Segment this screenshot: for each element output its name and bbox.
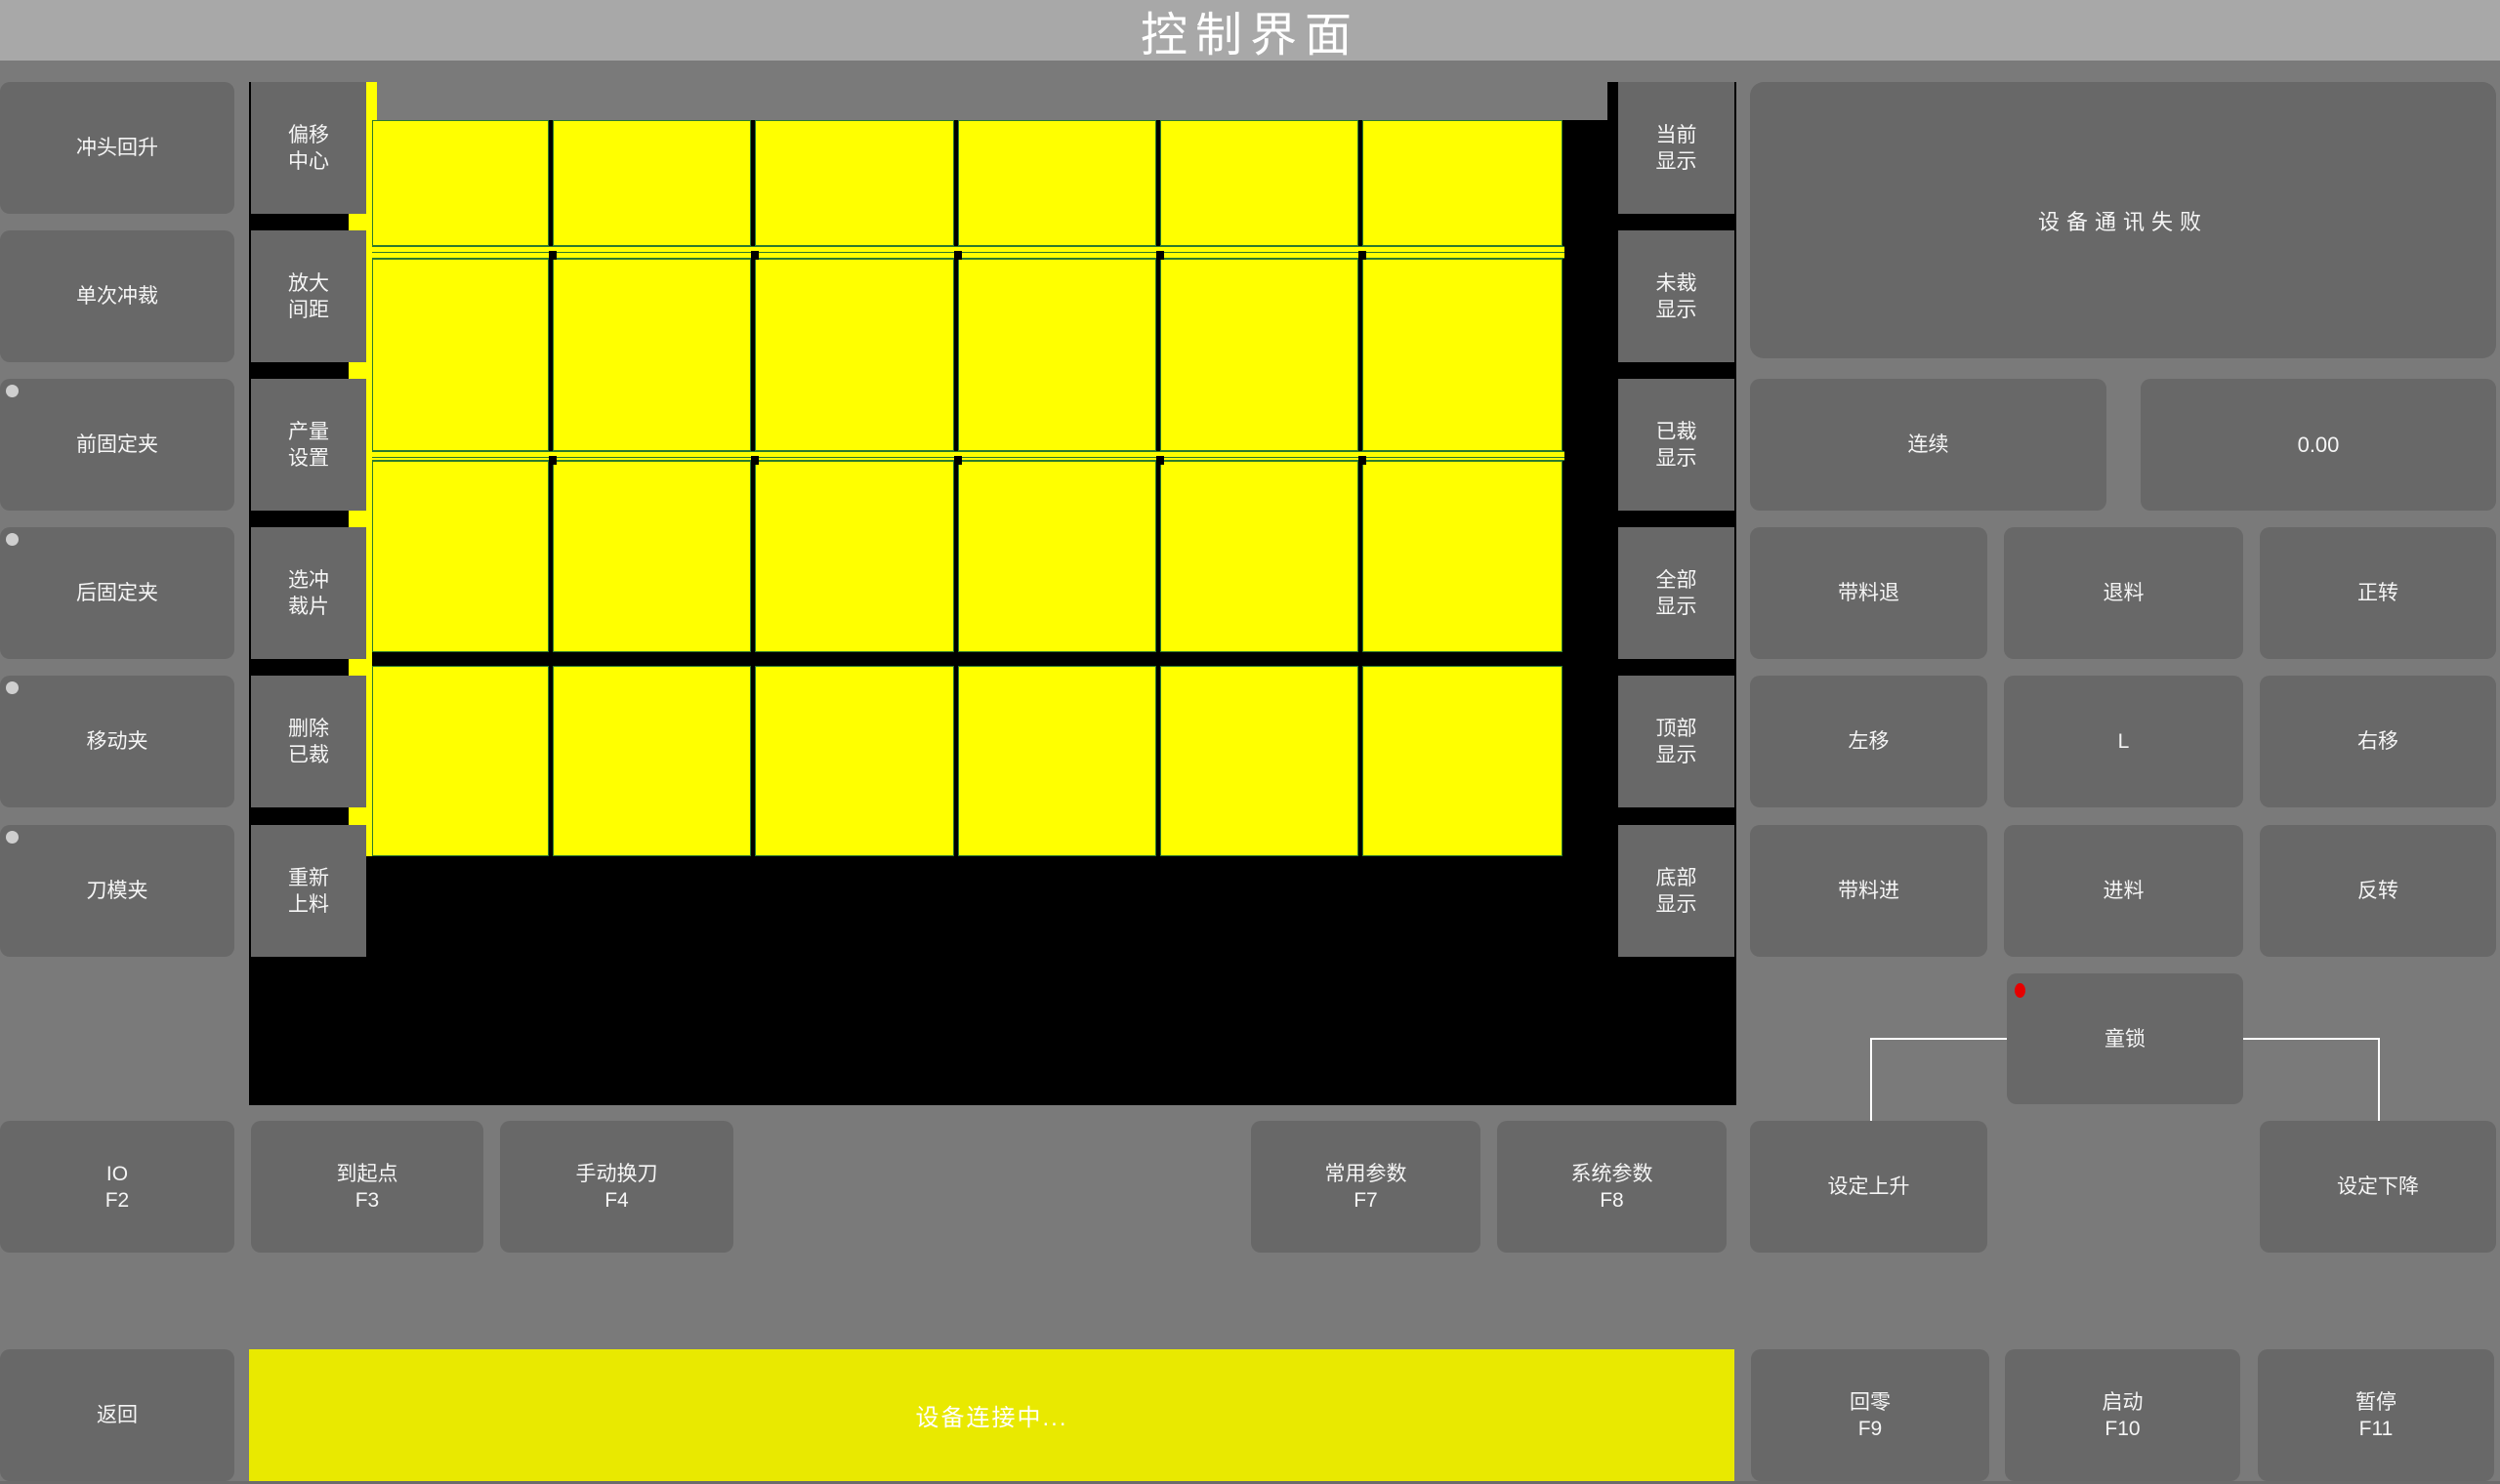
back-button[interactable]: 返回 xyxy=(0,1349,234,1481)
button-label-line: F9 xyxy=(1858,1416,1883,1442)
value-display[interactable]: 0.00 xyxy=(2141,379,2496,511)
child-lock-label: 童锁 xyxy=(2104,1026,2146,1052)
forward-rotate-button[interactable]: 正转 xyxy=(2260,527,2496,659)
button-label-line: 间距 xyxy=(288,297,329,323)
show-uncut-button[interactable]: 未裁显示 xyxy=(1618,230,1734,362)
button-label-line: 未裁 xyxy=(1656,270,1697,297)
button-label: L xyxy=(2118,728,2130,755)
connection-status-bar: 设备连接中... xyxy=(249,1349,1734,1481)
cut-piece[interactable] xyxy=(958,461,1156,652)
page-title: 控制界面 xyxy=(1141,0,1359,64)
front-clamp-button[interactable]: 前固定夹 xyxy=(0,379,234,511)
cut-notch xyxy=(1358,251,1366,260)
control-interface: 控制界面 冲头回升单次冲裁前固定夹后固定夹移动夹刀模夹 偏移中心放大间距产量设置… xyxy=(0,0,2500,1484)
io-f2-button[interactable]: IOF2 xyxy=(0,1121,234,1253)
cut-preview-canvas xyxy=(249,82,1736,1105)
comm-status-text: 设备通讯失败 xyxy=(2038,205,2208,236)
button-label: 冲头回升 xyxy=(76,135,158,161)
reverse-rotate-button[interactable]: 反转 xyxy=(2260,825,2496,957)
button-label-line: 显示 xyxy=(1656,297,1697,323)
cut-piece[interactable] xyxy=(1362,461,1562,652)
punch-up-button[interactable]: 冲头回升 xyxy=(0,82,234,214)
manual-toolchange-f4-button[interactable]: 手动换刀F4 xyxy=(500,1121,733,1253)
cut-piece[interactable] xyxy=(1160,120,1358,246)
button-label-line: 已裁 xyxy=(1656,419,1697,445)
scrap-strip xyxy=(372,246,1564,259)
show-top-button[interactable]: 顶部显示 xyxy=(1618,676,1734,807)
button-label: 移动夹 xyxy=(87,728,148,755)
reload-material-button[interactable]: 重新上料 xyxy=(251,825,366,957)
button-label-line: 上料 xyxy=(288,891,329,918)
zero-f9-button[interactable]: 回零F9 xyxy=(1751,1349,1989,1481)
button-label-line: 到起点 xyxy=(337,1161,398,1187)
connector-line xyxy=(1870,1038,1872,1121)
move-left-button[interactable]: 左移 xyxy=(1750,676,1987,807)
cut-piece[interactable] xyxy=(553,666,751,856)
button-label: 进料 xyxy=(2104,878,2145,904)
pause-f11-button[interactable]: 暂停F11 xyxy=(2258,1349,2494,1481)
cut-piece[interactable] xyxy=(755,461,954,652)
show-all-button[interactable]: 全部显示 xyxy=(1618,527,1734,659)
button-label-line: 显示 xyxy=(1656,742,1697,768)
button-label: 正转 xyxy=(2357,580,2398,606)
button-label-line: F2 xyxy=(105,1187,130,1214)
start-f10-button[interactable]: 启动F10 xyxy=(2005,1349,2240,1481)
button-label-line: 底部 xyxy=(1656,865,1697,891)
cut-piece[interactable] xyxy=(958,120,1156,246)
button-label-line: 回零 xyxy=(1850,1389,1891,1416)
cut-notch xyxy=(954,456,962,465)
button-label-line: F3 xyxy=(355,1187,380,1214)
button-label-line: 常用参数 xyxy=(1325,1161,1407,1187)
cut-piece[interactable] xyxy=(1160,461,1358,652)
state-indicator-dot xyxy=(6,831,19,844)
button-label: 单次冲裁 xyxy=(76,283,158,309)
cut-piece[interactable] xyxy=(1362,666,1562,856)
button-label-line: 系统参数 xyxy=(1571,1161,1653,1187)
cut-notch xyxy=(954,251,962,260)
state-indicator-dot xyxy=(6,385,19,397)
cut-piece[interactable] xyxy=(755,259,954,451)
cut-notch xyxy=(1358,456,1366,465)
button-label-line: F8 xyxy=(1600,1187,1624,1214)
cut-piece[interactable] xyxy=(372,120,549,246)
cut-piece[interactable] xyxy=(553,461,751,652)
button-label-line: 偏移 xyxy=(288,122,329,148)
cut-piece[interactable] xyxy=(1362,259,1562,451)
moving-clamp-button[interactable]: 移动夹 xyxy=(0,676,234,807)
title-bar: 控制界面 xyxy=(0,0,2500,61)
button-label-line: F10 xyxy=(2104,1416,2140,1442)
button-label: 后固定夹 xyxy=(76,580,158,606)
scrap-strip xyxy=(372,451,1564,461)
cut-piece[interactable] xyxy=(958,666,1156,856)
back-label: 返回 xyxy=(97,1402,138,1428)
button-label-line: 中心 xyxy=(288,148,329,175)
button-label-line: 显示 xyxy=(1656,148,1697,175)
output-setting-button[interactable]: 产量设置 xyxy=(251,379,366,511)
connector-line xyxy=(2378,1038,2380,1121)
button-label: 刀模夹 xyxy=(87,878,148,904)
enlarge-spacing-button[interactable]: 放大间距 xyxy=(251,230,366,362)
system-params-f8-button[interactable]: 系统参数F8 xyxy=(1497,1121,1727,1253)
button-label-line: IO xyxy=(106,1161,128,1187)
button-label-line: 全部 xyxy=(1656,567,1697,594)
l-button[interactable]: L xyxy=(2004,676,2243,807)
state-indicator-dot xyxy=(6,681,19,694)
cut-notch xyxy=(549,251,557,260)
button-label-line: 顶部 xyxy=(1656,716,1697,742)
cut-piece[interactable] xyxy=(755,120,954,246)
cut-piece[interactable] xyxy=(372,461,549,652)
button-label-line: 已裁 xyxy=(288,742,329,768)
button-label-line: 产量 xyxy=(288,419,329,445)
feed-button[interactable]: 进料 xyxy=(2004,825,2243,957)
button-label-line: F7 xyxy=(1354,1187,1378,1214)
button-label-line: 裁片 xyxy=(288,594,329,620)
value-display-text: 0.00 xyxy=(2298,432,2340,458)
button-label: 左移 xyxy=(1849,728,1890,755)
set-fall-label: 设定下降 xyxy=(2337,1174,2419,1200)
single-punch-button[interactable]: 单次冲裁 xyxy=(0,230,234,362)
button-label-line: F4 xyxy=(604,1187,629,1214)
set-fall-button[interactable]: 设定下降 xyxy=(2260,1121,2496,1253)
set-rise-button[interactable]: 设定上升 xyxy=(1750,1121,1987,1253)
state-indicator-dot xyxy=(6,533,19,546)
button-label-line: 显示 xyxy=(1656,594,1697,620)
comm-status-panel: 设备通讯失败 xyxy=(1750,82,2496,358)
cut-piece[interactable] xyxy=(755,666,954,856)
button-label: 退料 xyxy=(2104,580,2145,606)
move-right-button[interactable]: 右移 xyxy=(2260,676,2496,807)
button-label-line: 当前 xyxy=(1656,122,1697,148)
offset-center-button[interactable]: 偏移中心 xyxy=(251,82,366,214)
continuous-mode-label: 连续 xyxy=(1908,432,1949,458)
cut-notch xyxy=(1156,456,1164,465)
cut-notch xyxy=(751,456,759,465)
show-current-button[interactable]: 当前显示 xyxy=(1618,82,1734,214)
material-sliver xyxy=(366,82,377,120)
connection-status-text: 设备连接中... xyxy=(915,1398,1067,1432)
continuous-mode-button[interactable]: 连续 xyxy=(1750,379,2106,511)
child-lock-button[interactable]: 童锁 xyxy=(2007,973,2243,1104)
die-clamp-button[interactable]: 刀模夹 xyxy=(0,825,234,957)
cut-notch xyxy=(549,456,557,465)
unload-button[interactable]: 退料 xyxy=(2004,527,2243,659)
cut-piece[interactable] xyxy=(553,259,751,451)
button-label-line: 重新 xyxy=(288,865,329,891)
cut-piece[interactable] xyxy=(1160,259,1358,451)
set-rise-label: 设定上升 xyxy=(1828,1174,1910,1200)
cut-piece[interactable] xyxy=(1160,666,1358,856)
strip-feed-button[interactable]: 带料进 xyxy=(1750,825,1987,957)
button-label: 前固定夹 xyxy=(76,432,158,458)
origin-f3-button[interactable]: 到起点F3 xyxy=(251,1121,483,1253)
button-label-line: 设置 xyxy=(288,445,329,472)
connector-line xyxy=(2243,1038,2380,1040)
show-cut-button[interactable]: 已裁显示 xyxy=(1618,379,1734,511)
button-label-line: 暂停 xyxy=(2355,1389,2396,1416)
button-label-line: 删除 xyxy=(288,716,329,742)
button-label-line: 放大 xyxy=(288,270,329,297)
rear-clamp-button[interactable]: 后固定夹 xyxy=(0,527,234,659)
cut-notch xyxy=(1156,251,1164,260)
button-label-line: 选冲 xyxy=(288,567,329,594)
show-bottom-button[interactable]: 底部显示 xyxy=(1618,825,1734,957)
button-label-line: 显示 xyxy=(1656,445,1697,472)
button-label-line: 显示 xyxy=(1656,891,1697,918)
cut-piece[interactable] xyxy=(372,259,549,451)
cut-gap-band xyxy=(372,652,1564,666)
button-label: 带料退 xyxy=(1838,580,1899,606)
strip-back-button[interactable]: 带料退 xyxy=(1750,527,1987,659)
cut-piece[interactable] xyxy=(553,120,751,246)
button-label-line: 手动换刀 xyxy=(576,1161,658,1187)
button-label: 带料进 xyxy=(1838,878,1899,904)
button-label-line: 启动 xyxy=(2103,1389,2144,1416)
button-label-line: F11 xyxy=(2359,1416,2394,1442)
delete-cut-button[interactable]: 删除已裁 xyxy=(251,676,366,807)
select-piece-button[interactable]: 选冲裁片 xyxy=(251,527,366,659)
cut-piece[interactable] xyxy=(372,666,549,856)
connector-line xyxy=(1870,1038,2007,1040)
button-label: 反转 xyxy=(2357,878,2398,904)
cut-piece[interactable] xyxy=(1362,120,1562,246)
alarm-dot-icon xyxy=(2015,983,2025,998)
cut-piece[interactable] xyxy=(958,259,1156,451)
button-label: 右移 xyxy=(2357,728,2398,755)
common-params-f7-button[interactable]: 常用参数F7 xyxy=(1251,1121,1480,1253)
fed-material-strip xyxy=(377,82,1607,120)
cut-notch xyxy=(751,251,759,260)
cut-pieces-grid xyxy=(372,120,1564,856)
